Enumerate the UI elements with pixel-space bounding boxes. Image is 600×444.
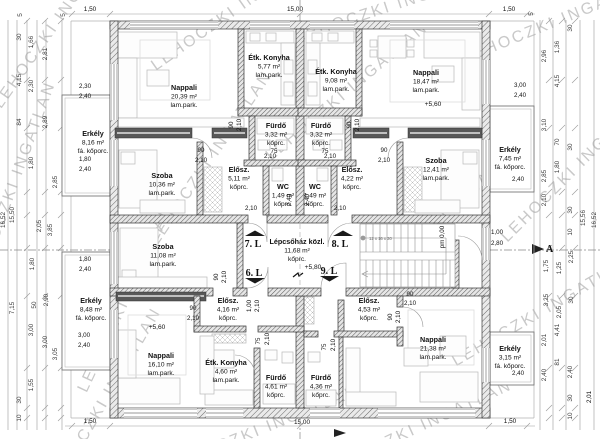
svg-text:81: 81 [554, 358, 561, 366]
svg-text:4,15: 4,15 [16, 73, 23, 86]
svg-text:2,01: 2,01 [541, 333, 548, 346]
svg-text:2,10: 2,10 [378, 157, 391, 164]
svg-text:2,40: 2,40 [78, 342, 91, 349]
svg-text:7. L: 7. L [245, 239, 262, 250]
svg-text:2,40: 2,40 [512, 370, 525, 377]
svg-text:2,10: 2,10 [330, 338, 337, 351]
svg-text:Fürdő3,32 m²kőprc.: Fürdő3,32 m²kőprc. [310, 121, 333, 147]
svg-text:1,50: 1,50 [84, 6, 97, 13]
svg-text:1,80: 1,80 [79, 256, 92, 263]
svg-text:2,30: 2,30 [79, 83, 92, 90]
svg-text:90: 90 [228, 121, 235, 128]
svg-text:2,10: 2,10 [264, 153, 277, 160]
svg-text:Szoba10,36 m²lam.park.: Szoba10,36 m²lam.park. [148, 171, 175, 197]
svg-text:2,81: 2,81 [42, 47, 49, 60]
svg-text:2,10: 2,10 [187, 315, 200, 322]
svg-text:50: 50 [31, 301, 38, 309]
svg-text:1,00: 1,00 [491, 229, 504, 236]
svg-text:Elősz.4,53 m²kőprc.: Elősz.4,53 m²kőprc. [358, 296, 381, 322]
svg-text:1,66: 1,66 [28, 35, 35, 48]
svg-text:Elősz.4,22 m²kőprc.: Elősz.4,22 m²kőprc. [341, 165, 364, 191]
svg-text:30: 30 [567, 206, 574, 214]
svg-text:Nappali18,47 m²lam.park.: Nappali18,47 m²lam.park. [412, 68, 439, 94]
svg-text:2,05: 2,05 [36, 219, 43, 232]
svg-text:16,52: 16,52 [591, 212, 598, 228]
svg-text:4,15: 4,15 [554, 74, 561, 87]
svg-text:1,50: 1,50 [84, 418, 97, 425]
svg-text:2,10: 2,10 [541, 193, 548, 206]
svg-text:3,25: 3,25 [543, 293, 550, 306]
svg-text:30: 30 [567, 24, 574, 32]
svg-text:15,50: 15,50 [9, 207, 16, 223]
svg-text:2,10: 2,10 [354, 118, 361, 131]
svg-text:2,40: 2,40 [512, 176, 525, 183]
svg-text:2,40: 2,40 [79, 266, 92, 273]
svg-text:2,40: 2,40 [514, 92, 527, 99]
svg-text:7,15: 7,15 [9, 301, 16, 314]
svg-text:3,00: 3,00 [78, 332, 91, 339]
svg-text:1,75: 1,75 [543, 259, 550, 272]
svg-text:Szoba12,41 m²lam.park.: Szoba12,41 m²lam.park. [422, 156, 449, 182]
svg-text:30: 30 [16, 33, 23, 41]
svg-text:90: 90 [381, 147, 388, 154]
svg-text:2,40: 2,40 [304, 193, 311, 206]
svg-text:30: 30 [16, 396, 23, 404]
svg-text:2,85: 2,85 [541, 169, 548, 182]
svg-text:Szoba11,08 m²lam.park.: Szoba11,08 m²lam.park. [149, 242, 176, 268]
svg-text:1,50: 1,50 [503, 6, 516, 13]
svg-text:2,01: 2,01 [586, 390, 593, 403]
svg-text:2,10: 2,10 [245, 205, 258, 212]
svg-text:1,00: 1,00 [246, 299, 253, 312]
svg-text:5: 5 [60, 13, 67, 17]
svg-text:16,52: 16,52 [0, 212, 7, 228]
svg-text:2,40: 2,40 [541, 368, 548, 381]
svg-text:75: 75 [255, 337, 262, 344]
svg-text:+5,80: +5,80 [305, 264, 322, 271]
svg-text:3,10: 3,10 [541, 118, 548, 131]
svg-text:2,40: 2,40 [79, 93, 92, 100]
svg-text:1,80: 1,80 [554, 160, 561, 173]
svg-text:9. L: 9. L [321, 266, 338, 277]
svg-text:75: 75 [321, 343, 328, 350]
svg-text:10: 10 [16, 414, 23, 422]
svg-text:3,00: 3,00 [42, 335, 49, 348]
svg-text:2,89: 2,89 [42, 115, 49, 128]
svg-text:1,55: 1,55 [28, 378, 35, 391]
svg-text:+5,60: +5,60 [425, 101, 442, 108]
svg-text:Fürdő3,32 m²kőprc.: Fürdő3,32 m²kőprc. [265, 121, 288, 147]
svg-text:2,10: 2,10 [264, 332, 271, 345]
svg-text:90: 90 [346, 121, 353, 128]
svg-text:30: 30 [568, 296, 575, 304]
svg-text:30: 30 [567, 394, 574, 402]
svg-text:10: 10 [567, 412, 574, 420]
svg-text:5: 5 [17, 13, 24, 17]
svg-text:30: 30 [567, 143, 574, 151]
svg-text:8. L: 8. L [332, 239, 349, 250]
svg-text:1,80: 1,80 [28, 156, 35, 169]
svg-text:2,40: 2,40 [79, 166, 92, 173]
svg-text:2,10: 2,10 [395, 310, 402, 323]
svg-text:2,25: 2,25 [568, 250, 575, 263]
svg-text:2,10: 2,10 [221, 270, 228, 283]
svg-text:2,10: 2,10 [254, 299, 261, 312]
svg-text:90: 90 [198, 147, 205, 154]
svg-text:2,85: 2,85 [52, 175, 59, 188]
svg-text:90: 90 [213, 273, 220, 280]
svg-text:2,96: 2,96 [541, 49, 548, 62]
svg-text:90: 90 [190, 305, 197, 312]
svg-text:2,40: 2,40 [567, 365, 574, 378]
svg-text:1,50: 1,50 [504, 418, 517, 425]
svg-text:5: 5 [528, 12, 535, 16]
svg-text:3,00: 3,00 [28, 323, 35, 336]
svg-text:1,80: 1,80 [29, 257, 36, 270]
svg-text:2,10: 2,10 [334, 205, 347, 212]
svg-text:1,36: 1,36 [554, 40, 561, 53]
svg-text:6. L: 6. L [246, 268, 263, 279]
svg-text:15,00: 15,00 [287, 6, 303, 13]
svg-text:Nappali16,10 m²lam.park.: Nappali16,10 m²lam.park. [147, 351, 174, 377]
svg-text:A: A [546, 244, 554, 255]
svg-text:2,90: 2,90 [43, 293, 50, 306]
svg-text:pm 0,00: pm 0,00 [439, 225, 446, 248]
svg-text:Nappali20,39 m²lam.park.: Nappali20,39 m²lam.park. [170, 83, 197, 109]
svg-text:Fürdő4,61 m²kőprc.: Fürdő4,61 m²kőprc. [265, 373, 288, 399]
svg-text:70: 70 [554, 138, 561, 146]
svg-text:2,10: 2,10 [404, 300, 417, 307]
svg-text:4,41: 4,41 [554, 323, 561, 336]
svg-text:90: 90 [407, 291, 414, 298]
svg-text:2,80: 2,80 [491, 240, 504, 247]
svg-text:2,10: 2,10 [236, 118, 243, 131]
svg-text:Nappali21,38 m²lam.park.: Nappali21,38 m²lam.park. [419, 335, 446, 361]
svg-text:3,85: 3,85 [47, 223, 54, 236]
svg-text:1,80: 1,80 [79, 156, 92, 163]
svg-text:3,00: 3,00 [514, 82, 527, 89]
svg-text:15,00: 15,00 [294, 419, 310, 426]
svg-text:1,25: 1,25 [556, 261, 563, 274]
svg-text:Elősz.4,16 m²kőprc.: Elősz.4,16 m²kőprc. [217, 296, 240, 322]
svg-text:2,10: 2,10 [324, 153, 337, 160]
svg-text:10: 10 [567, 228, 574, 236]
svg-text:2,30: 2,30 [28, 79, 35, 92]
svg-text:2,40: 2,40 [286, 193, 293, 206]
svg-text:2,10: 2,10 [195, 157, 208, 164]
svg-text:15,56: 15,56 [580, 210, 587, 226]
svg-text:84: 84 [16, 118, 23, 126]
svg-text:90: 90 [387, 313, 394, 320]
svg-text:3,05: 3,05 [52, 347, 59, 360]
svg-text:Elősz.5,11 m²kőprc.: Elősz.5,11 m²kőprc. [228, 165, 251, 191]
svg-text:+5,60: +5,60 [149, 324, 166, 331]
svg-text:Fürdő4,36 m²kőprc.: Fürdő4,36 m²kőprc. [310, 373, 333, 399]
svg-text:12 x 16 x 30: 12 x 16 x 30 [369, 236, 392, 241]
svg-text:2,05: 2,05 [556, 305, 563, 318]
